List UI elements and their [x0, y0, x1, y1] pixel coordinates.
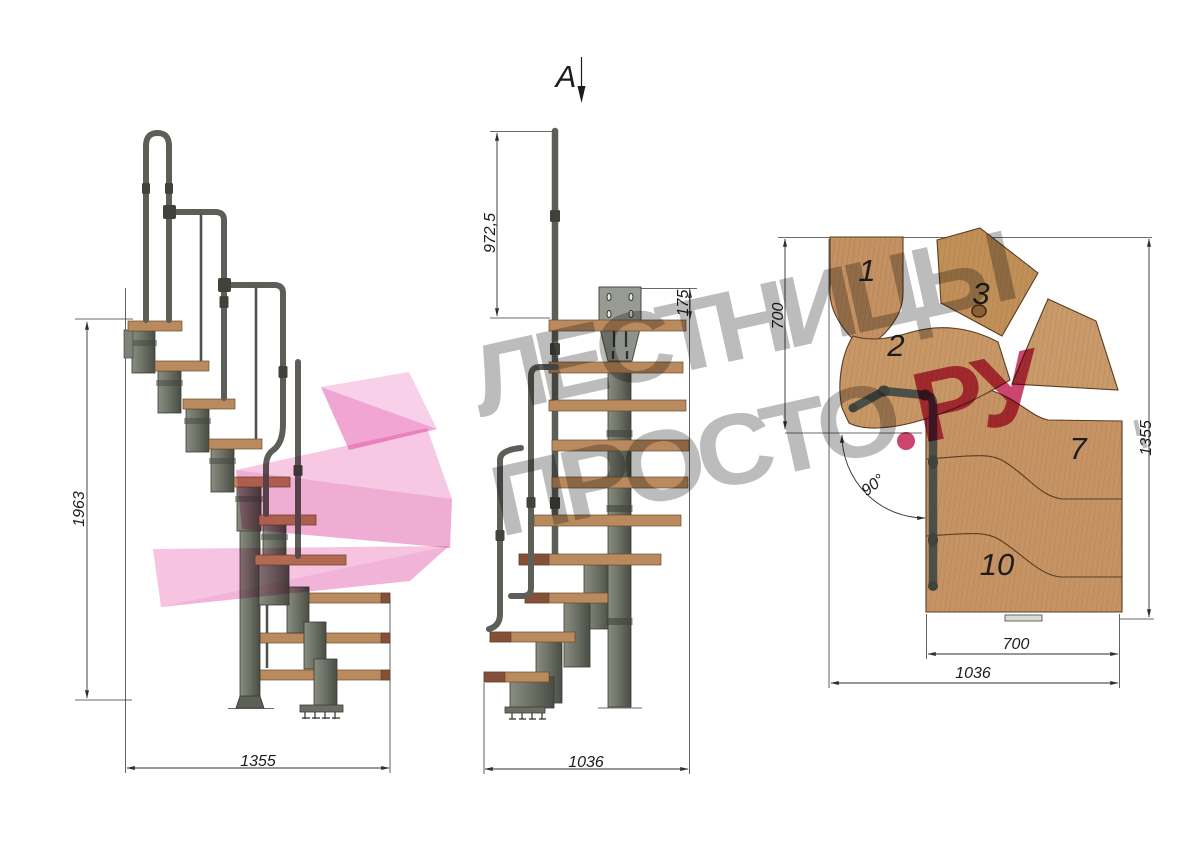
svg-text:7: 7	[1069, 431, 1088, 466]
svg-text:A: A	[554, 59, 577, 94]
svg-text:1963: 1963	[71, 491, 88, 527]
svg-text:1355: 1355	[1138, 420, 1155, 456]
svg-text:1036: 1036	[568, 754, 604, 771]
svg-text:700: 700	[1003, 636, 1030, 653]
svg-text:1036: 1036	[955, 665, 991, 682]
svg-text:10: 10	[980, 547, 1014, 582]
svg-text:1355: 1355	[240, 753, 276, 770]
svg-text:972,5: 972,5	[482, 213, 499, 253]
